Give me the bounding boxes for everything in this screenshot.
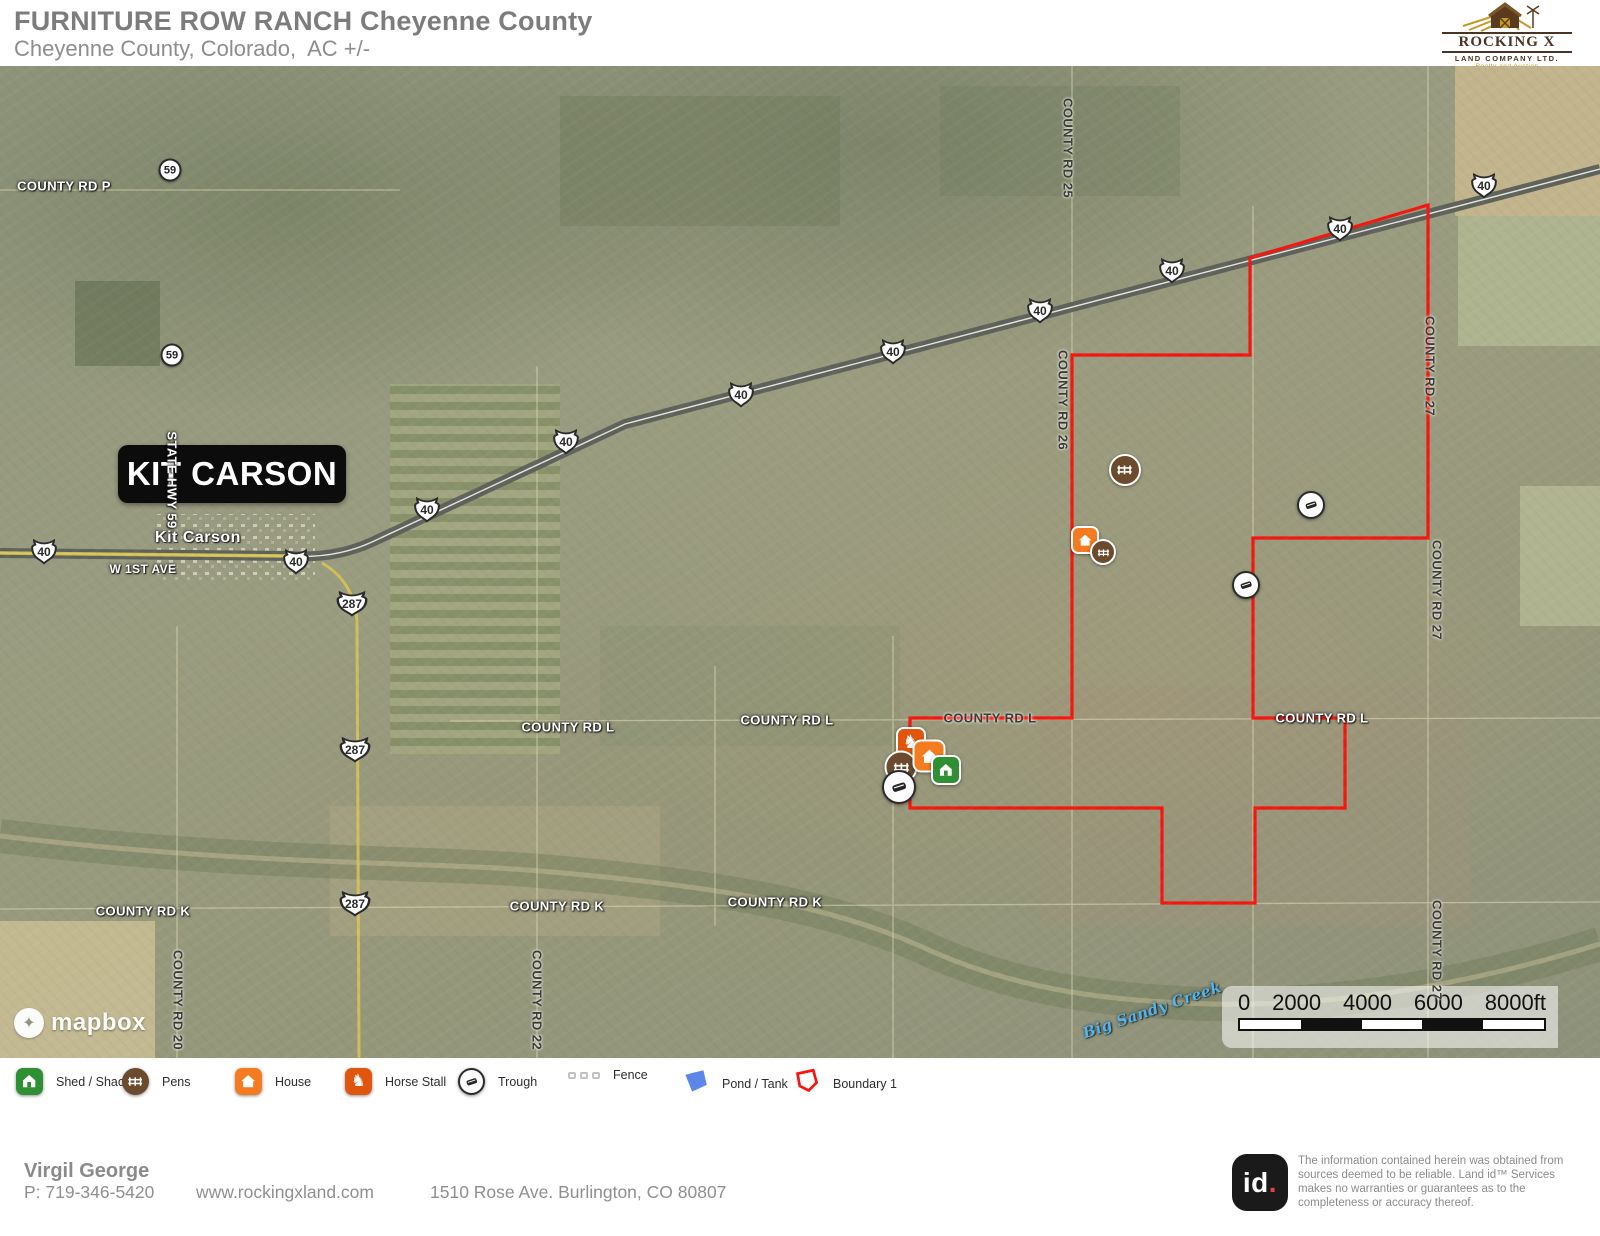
road-label: COUNTY RD L — [1276, 711, 1369, 726]
agent-website[interactable]: www.rockingxland.com — [196, 1182, 374, 1203]
landid-block: id. The information contained herein was… — [1232, 1154, 1566, 1211]
us-highway-shield: 40 — [412, 495, 442, 523]
road-label: COUNTY RD 27 — [1423, 316, 1438, 416]
road-label: COUNTY RD L — [522, 720, 615, 735]
map-legend: Shed / ShackPensHouse♞Horse StallTroughF… — [0, 1058, 1600, 1128]
state-route-shield: 59 — [161, 344, 184, 367]
legend-item-house: House — [235, 1068, 311, 1095]
mapbox-attribution[interactable]: mapbox — [14, 1008, 146, 1038]
us-highway-shield: 287 — [337, 735, 373, 763]
road-label: COUNTY RD 26 — [1056, 350, 1071, 450]
brand-sub: LAND COMPANY LTD. — [1442, 54, 1572, 63]
road-label: COUNTY RD 25 — [1061, 98, 1076, 198]
us-highway-shield: 40 — [1469, 171, 1499, 199]
road-label: COUNTY RD K — [728, 895, 822, 910]
legend-item-boundary: Boundary 1 — [793, 1068, 897, 1100]
town-label-box: KIT CARSON — [118, 445, 346, 503]
scalebar-bar — [1238, 1018, 1546, 1031]
us-highway-shield: 40 — [1157, 256, 1187, 284]
us-highway-shield: 287 — [337, 889, 373, 917]
mapbox-icon — [14, 1008, 44, 1038]
satellite-map[interactable]: KIT CARSON 02000400060008000ft mapbox CO… — [0, 66, 1600, 1058]
road-label: Big Sandy Creek — [1080, 978, 1223, 1042]
agent-name: Virgil George — [24, 1160, 149, 1183]
us-highway-shield: 40 — [1025, 296, 1055, 324]
legend-item-trough: Trough — [458, 1068, 537, 1095]
road-label: COUNTY RD K — [96, 904, 190, 919]
legend-item-stall: ♞Horse Stall — [345, 1068, 446, 1095]
landid-logo: id. — [1232, 1154, 1288, 1211]
boundary-icon — [793, 1068, 820, 1100]
header: FURNITURE ROW RANCH Cheyenne County Chey… — [0, 0, 1600, 66]
legend-item-pond: Pond / Tank — [682, 1068, 788, 1100]
road-label: COUNTY RD K — [510, 899, 604, 914]
us-highway-shield: 40 — [1325, 214, 1355, 242]
trough-icon — [1232, 571, 1260, 599]
house-icon — [235, 1068, 262, 1095]
legend-label: Boundary 1 — [833, 1077, 897, 1091]
fence-icon — [568, 1072, 600, 1079]
legend-item-fence: Fence — [568, 1068, 648, 1082]
road-label: Kit Carson — [155, 529, 241, 547]
legend-label: Trough — [498, 1075, 537, 1089]
us-highway-shield: 40 — [878, 337, 908, 365]
road-label: W 1ST AVE — [110, 562, 177, 576]
scalebar-tick: 2000 — [1272, 990, 1321, 1016]
pens-icon — [1109, 454, 1141, 486]
legend-label: Horse Stall — [385, 1075, 446, 1089]
legend-label: Shed / Shack — [56, 1075, 130, 1089]
us-highway-shield: 40 — [726, 380, 756, 408]
scalebar-tick: 8000ft — [1485, 990, 1546, 1016]
us-highway-shield: 40 — [551, 427, 581, 455]
map-marker-shed[interactable] — [931, 755, 961, 785]
page-subtitle: Cheyenne County, Colorado, AC +/- — [14, 36, 370, 62]
legend-item-pens: Pens — [122, 1068, 191, 1095]
road-label: COUNTY RD 20 — [171, 950, 186, 1050]
road-label: COUNTY RD L — [944, 711, 1037, 726]
state-route-shield: 59 — [159, 159, 182, 182]
map-marker-trough[interactable] — [1297, 491, 1325, 519]
road-label: COUNTY RD 27 — [1430, 900, 1445, 1000]
road-label: STATE HWY 59 — [165, 431, 180, 528]
map-marker-pens[interactable] — [1090, 539, 1116, 565]
legend-label: Fence — [613, 1068, 648, 1082]
page-title: FURNITURE ROW RANCH Cheyenne County — [14, 6, 593, 37]
road-label: COUNTY RD L — [741, 713, 834, 728]
legend-label: Pens — [162, 1075, 191, 1089]
road-label: COUNTY RD 27 — [1430, 540, 1445, 640]
brand-logo: ROCKING X LAND COMPANY LTD. Realty and A… — [1442, 2, 1572, 64]
pond-icon — [682, 1068, 709, 1100]
legend-item-shed: Shed / Shack — [16, 1068, 130, 1095]
shed-icon — [931, 755, 961, 785]
horse-stall-icon: ♞ — [345, 1068, 372, 1095]
road-label: COUNTY RD P — [17, 179, 111, 194]
map-overlays: KIT CARSON 02000400060008000ft mapbox CO… — [0, 66, 1600, 1058]
scalebar-ticks: 02000400060008000ft — [1238, 990, 1546, 1016]
agent-address: 1510 Rose Ave. Burlington, CO 80807 — [430, 1182, 726, 1203]
map-scalebar: 02000400060008000ft — [1222, 986, 1558, 1048]
pens-icon — [1090, 539, 1116, 565]
us-highway-shield: 40 — [29, 537, 59, 565]
trough-icon — [1297, 491, 1325, 519]
brand-name: ROCKING X — [1442, 32, 1572, 53]
mapbox-wordmark: mapbox — [51, 1009, 146, 1037]
barn-icon — [1461, 2, 1553, 32]
road-label: COUNTY RD 22 — [530, 950, 545, 1050]
trough-icon — [882, 770, 916, 804]
shed-icon — [16, 1068, 43, 1095]
trough-icon — [458, 1068, 485, 1095]
pens-icon — [122, 1068, 149, 1095]
legend-label: Pond / Tank — [722, 1077, 788, 1091]
footer: Virgil George P: 719-346-5420 www.rockin… — [0, 1160, 1600, 1236]
landid-disclaimer: The information contained herein was obt… — [1298, 1154, 1566, 1211]
us-highway-shield: 287 — [334, 589, 370, 617]
scalebar-tick: 0 — [1238, 990, 1250, 1016]
map-marker-pens[interactable] — [1109, 454, 1141, 486]
map-marker-trough[interactable] — [1232, 571, 1260, 599]
us-highway-shield: 40 — [281, 547, 311, 575]
agent-phone: P: 719-346-5420 — [24, 1182, 154, 1203]
scalebar-tick: 4000 — [1343, 990, 1392, 1016]
map-marker-trough[interactable] — [882, 770, 916, 804]
page: FURNITURE ROW RANCH Cheyenne County Chey… — [0, 0, 1600, 1236]
legend-label: House — [275, 1075, 311, 1089]
